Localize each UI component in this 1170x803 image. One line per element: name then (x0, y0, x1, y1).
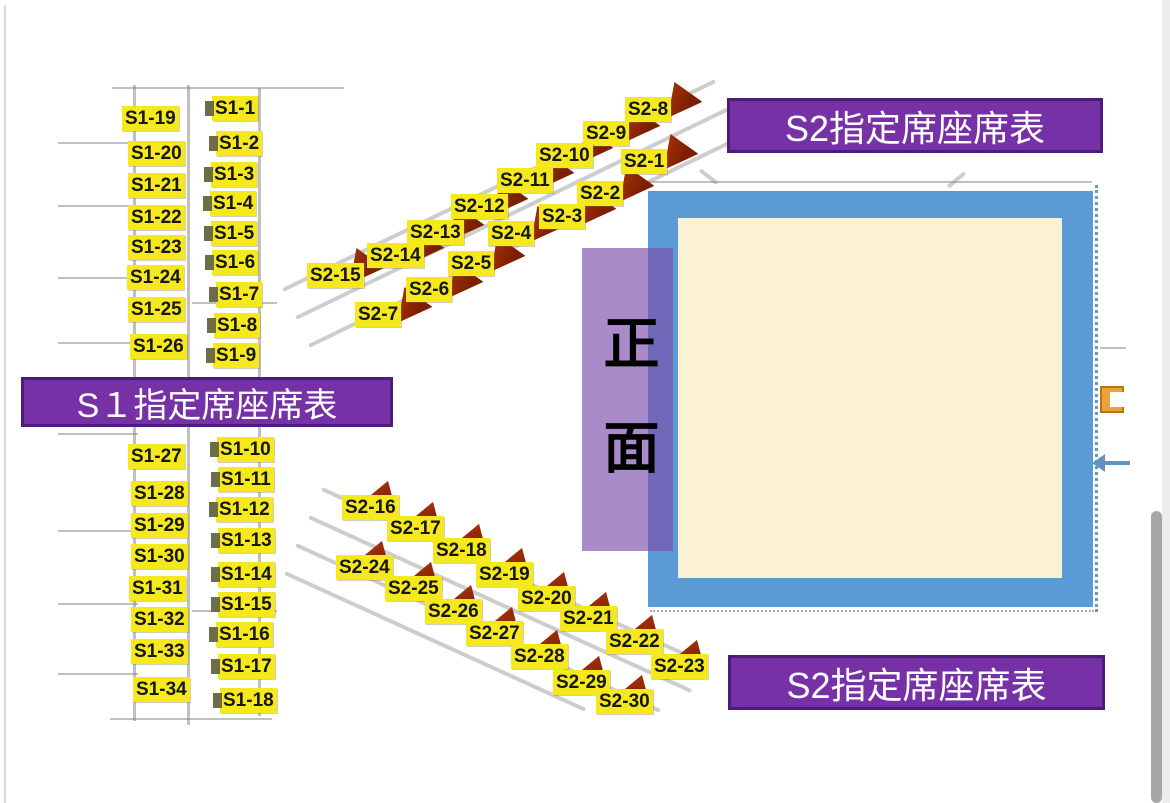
s2-banner-bottom: S2指定席座席表 (728, 655, 1105, 710)
seat-label-S2-22: S2-22 (606, 629, 663, 654)
seat-label-S2-18: S2-18 (433, 538, 490, 563)
seat-label-S2-11: S2-11 (497, 168, 553, 193)
seat-label-S2-2: S2-2 (577, 181, 623, 206)
seat-label-S1-26: S1-26 (130, 334, 187, 359)
left-arrow-shaft (1103, 461, 1130, 465)
s1-banner-label: S１指定席座席表 (77, 378, 338, 427)
floorplan-line (1100, 347, 1126, 349)
chair-icon-notch (1110, 392, 1124, 407)
seat-label-S2-15: S2-15 (307, 263, 364, 288)
seat-label-S1-23: S1-23 (128, 235, 185, 260)
seat-label-S2-8: S2-8 (625, 97, 671, 122)
seat-label-S1-14: S1-14 (218, 562, 275, 587)
floorplan-line (58, 603, 138, 605)
left-arrow-icon (1092, 454, 1130, 472)
floorplan-line (58, 342, 138, 344)
seat-label-S2-30: S2-30 (596, 689, 653, 714)
seat-label-S2-25: S2-25 (385, 576, 442, 601)
seat-label-S1-25: S1-25 (128, 297, 185, 322)
seat-label-S1-20: S1-20 (128, 141, 185, 166)
s2-banner-bottom-label: S2指定席座席表 (786, 657, 1046, 709)
seat-label-S1-22: S1-22 (128, 205, 185, 230)
viewer-right-edge (1162, 0, 1170, 803)
floorplan-line (947, 171, 966, 188)
seat-label-S1-15: S1-15 (218, 592, 275, 617)
scrollbar-thumb[interactable] (1151, 511, 1162, 803)
seat-label-S2-10: S2-10 (536, 143, 593, 168)
seat-label-S2-5: S2-5 (448, 251, 494, 276)
seat-label-S1-32: S1-32 (131, 607, 188, 632)
seat-label-S1-21: S1-21 (128, 173, 185, 198)
s2-banner-top: S2指定席座席表 (727, 98, 1103, 153)
seat-label-S1-2: S1-2 (216, 131, 262, 156)
floorplan-line (58, 142, 138, 144)
seat-label-S2-23: S2-23 (651, 654, 708, 679)
seating-chart-canvas: 正面 S１指定席座席表 S2指定席座席表 S2指定席座席表 S1-19S1-20… (0, 0, 1170, 803)
seat-label-S2-21: S2-21 (560, 606, 617, 631)
seat-label-S1-19: S1-19 (122, 106, 179, 131)
seat-label-S2-1: S2-1 (621, 149, 667, 174)
seat-label-S1-18: S1-18 (220, 688, 277, 713)
seat-label-S2-4: S2-4 (488, 221, 534, 246)
seat-label-S1-34: S1-34 (133, 677, 190, 702)
seat-label-S1-6: S1-6 (212, 250, 258, 275)
seat-label-S1-4: S1-4 (210, 191, 256, 216)
seat-label-S1-33: S1-33 (131, 639, 188, 664)
seat-label-S2-12: S2-12 (451, 194, 508, 219)
seat-label-S1-8: S1-8 (214, 313, 260, 338)
seat-label-S1-1: S1-1 (212, 96, 258, 121)
seat-label-S1-10: S1-10 (217, 437, 274, 462)
floorplan-line (58, 205, 138, 207)
floorplan-line (58, 530, 138, 532)
seat-label-S1-28: S1-28 (131, 481, 188, 506)
seat-label-S1-5: S1-5 (211, 221, 257, 246)
floorplan-line (110, 718, 272, 720)
s2-banner-top-label: S2指定席座席表 (785, 100, 1045, 152)
chair-icon (1100, 386, 1124, 413)
stage-area (678, 218, 1062, 578)
floorplan-line (112, 87, 344, 89)
floorplan-line (58, 277, 138, 279)
seat-label-S1-24: S1-24 (127, 265, 184, 290)
floorplan-line (58, 433, 138, 435)
s1-banner: S１指定席座席表 (21, 377, 393, 427)
selection-border (1095, 185, 1098, 612)
seat-label-S2-28: S2-28 (511, 644, 568, 669)
seat-label-S2-19: S2-19 (476, 562, 533, 587)
seat-label-S2-6: S2-6 (406, 277, 452, 302)
seat-label-S1-31: S1-31 (129, 576, 186, 601)
seat-label-S1-16: S1-16 (216, 622, 273, 647)
seat-label-S2-27: S2-27 (466, 621, 523, 646)
seat-label-S1-3: S1-3 (211, 162, 257, 187)
seat-label-S1-7: S1-7 (216, 282, 262, 307)
selection-border (650, 610, 1094, 612)
seat-label-S1-9: S1-9 (213, 343, 259, 368)
seat-label-S1-11: S1-11 (218, 467, 274, 492)
seat-label-S2-13: S2-13 (407, 220, 464, 245)
seat-label-S2-14: S2-14 (367, 243, 424, 268)
seat-label-S1-27: S1-27 (128, 444, 185, 469)
seat-label-S1-29: S1-29 (131, 513, 188, 538)
floorplan-line (58, 673, 138, 675)
seat-label-S1-13: S1-13 (218, 528, 275, 553)
viewer-left-edge (4, 5, 6, 803)
seat-label-S1-30: S1-30 (131, 544, 188, 569)
seat-label-S2-7: S2-7 (355, 302, 401, 327)
stage-front-label: 正面 (597, 314, 657, 522)
seat-label-S1-12: S1-12 (216, 497, 273, 522)
seat-label-S1-17: S1-17 (218, 654, 275, 679)
seat-label-S2-3: S2-3 (539, 204, 585, 229)
